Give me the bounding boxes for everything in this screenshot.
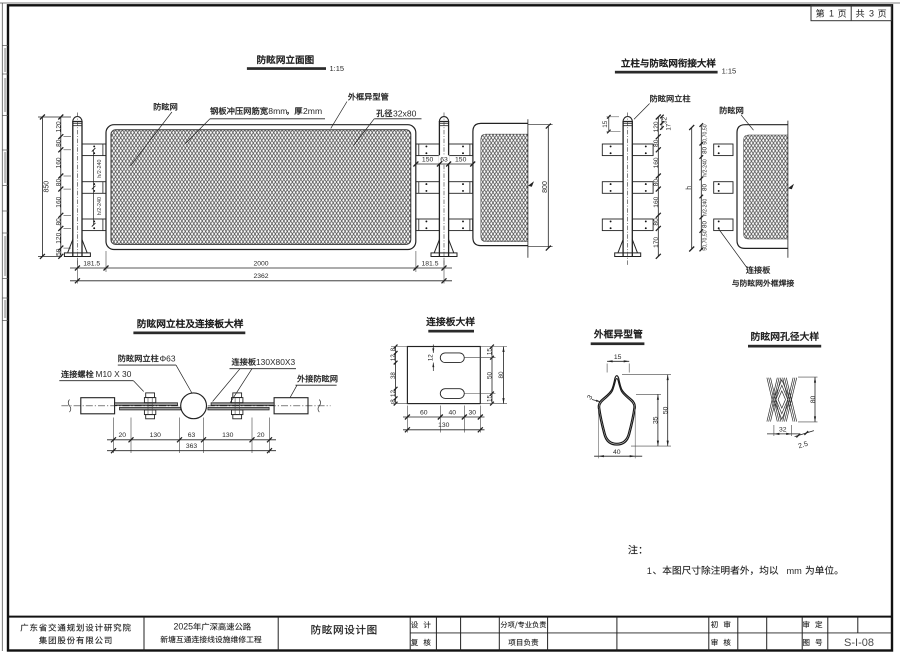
svg-text:80: 80 (653, 139, 660, 147)
svg-text:S-I-08: S-I-08 (844, 637, 874, 649)
svg-text:2000: 2000 (253, 260, 268, 267)
svg-text:35: 35 (653, 416, 660, 424)
svg-text:30: 30 (469, 409, 477, 416)
svg-text:15: 15 (487, 348, 494, 356)
svg-text:12: 12 (427, 354, 434, 361)
svg-text:80: 80 (55, 139, 62, 147)
svg-text:2mm: 2mm (303, 106, 322, 116)
svg-text:130: 130 (438, 422, 450, 429)
svg-text:120: 120 (55, 232, 62, 243)
svg-text:40: 40 (613, 449, 621, 456)
svg-text:63: 63 (188, 432, 196, 439)
svg-text:2025: 2025 (174, 622, 194, 632)
svg-text:181.5: 181.5 (421, 260, 438, 267)
svg-text:80: 80 (702, 221, 709, 228)
svg-text:15: 15 (614, 354, 622, 361)
svg-text:32: 32 (779, 426, 787, 433)
svg-text:130: 130 (150, 432, 162, 439)
svg-text:80: 80 (498, 371, 505, 379)
svg-text:50: 50 (55, 248, 62, 256)
svg-text:50: 50 (662, 406, 669, 414)
svg-text:120: 120 (653, 121, 660, 132)
svg-text:h/2-240: h/2-240 (97, 159, 103, 177)
svg-text:1: 1 (647, 566, 652, 576)
svg-text:800: 800 (542, 181, 549, 193)
svg-text:50: 50 (487, 372, 494, 380)
svg-text:1:15: 1:15 (722, 67, 737, 76)
svg-text:150: 150 (455, 157, 467, 164)
svg-text:3: 3 (869, 9, 874, 19)
svg-text:20: 20 (257, 432, 265, 439)
svg-text:160: 160 (653, 157, 660, 168)
svg-text:160: 160 (55, 196, 62, 207)
svg-text:160: 160 (55, 157, 62, 168)
svg-text:80: 80 (810, 396, 817, 404)
svg-text:h/2-240: h/2-240 (702, 199, 708, 217)
svg-text:80: 80 (702, 146, 709, 153)
svg-text:h/2-240: h/2-240 (97, 197, 103, 215)
svg-text:120: 120 (55, 121, 62, 132)
svg-text:80: 80 (55, 179, 62, 187)
svg-text:8: 8 (390, 399, 397, 403)
svg-text:50,70,50: 50,70,50 (702, 124, 708, 144)
svg-text:32: 32 (662, 116, 669, 123)
svg-text:38: 38 (390, 372, 397, 379)
svg-text:8: 8 (390, 347, 397, 351)
svg-text:363: 363 (186, 443, 198, 450)
svg-text:170: 170 (653, 237, 660, 248)
svg-text:63: 63 (440, 157, 448, 164)
svg-text:130X80X3: 130X80X3 (256, 357, 295, 367)
svg-text:h/2-240: h/2-240 (702, 159, 708, 177)
svg-text:Φ63: Φ63 (160, 353, 176, 363)
svg-text:h: h (686, 186, 693, 190)
svg-text:12: 12 (390, 390, 397, 397)
svg-text:17: 17 (666, 123, 673, 130)
svg-text:40: 40 (449, 409, 457, 416)
svg-text:160: 160 (653, 196, 660, 207)
svg-text:8mm: 8mm (268, 106, 287, 116)
svg-text:2.5: 2.5 (798, 441, 809, 451)
svg-text:12: 12 (390, 354, 397, 361)
svg-text:80: 80 (653, 218, 660, 226)
svg-text:850: 850 (43, 181, 50, 193)
svg-text:80: 80 (653, 179, 660, 187)
svg-text:80: 80 (702, 184, 709, 191)
svg-text:15: 15 (602, 120, 609, 128)
svg-text:50,70,50: 50,70,50 (702, 230, 708, 250)
svg-text:20: 20 (119, 432, 127, 439)
svg-text:1: 1 (829, 9, 834, 19)
svg-text:181.5: 181.5 (83, 260, 100, 267)
svg-text:150: 150 (422, 157, 434, 164)
svg-text:mm: mm (787, 566, 803, 576)
svg-text:80: 80 (55, 218, 62, 226)
svg-text:32x80: 32x80 (393, 108, 417, 118)
svg-text:1:15: 1:15 (330, 64, 345, 73)
svg-text:15: 15 (487, 395, 494, 403)
svg-text:60: 60 (420, 409, 428, 416)
svg-text:2362: 2362 (253, 273, 268, 280)
svg-text:M10 X 30: M10 X 30 (96, 369, 132, 379)
svg-text:130: 130 (222, 432, 234, 439)
